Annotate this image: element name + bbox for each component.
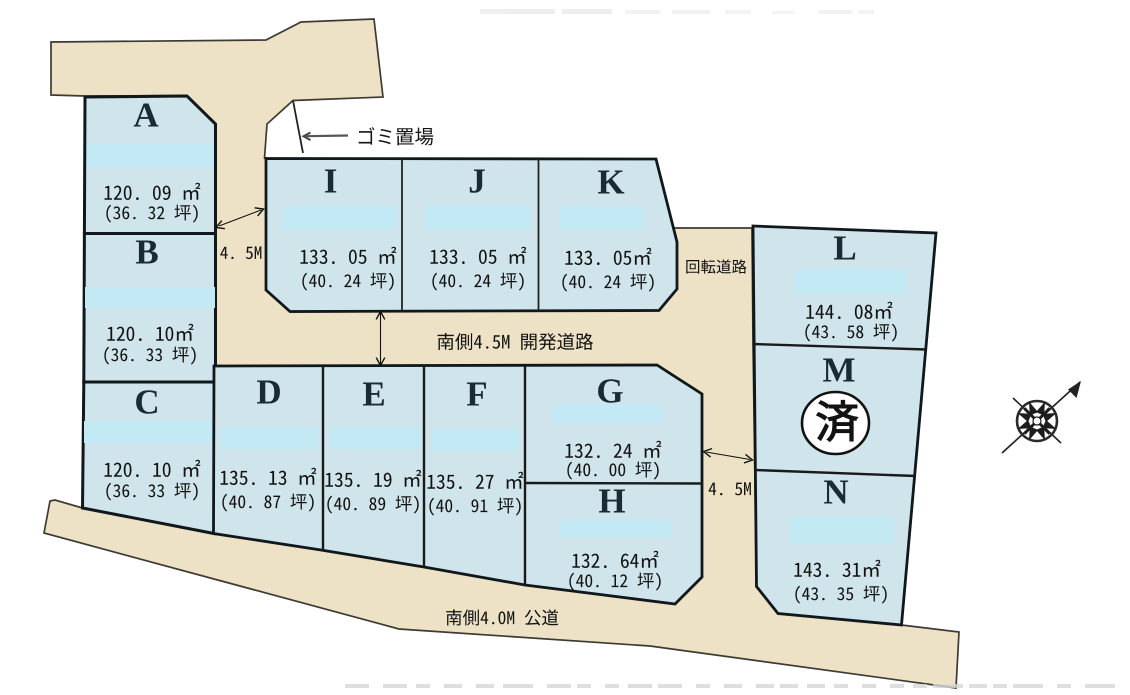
svg-text:G: G (596, 372, 623, 411)
svg-text:F: F (466, 375, 487, 414)
svg-text:E: E (362, 375, 385, 414)
svg-text:C: C (134, 383, 159, 422)
svg-text:K: K (597, 163, 624, 202)
svg-text:M: M (822, 351, 855, 390)
svg-text:L: L (833, 229, 856, 268)
svg-text:B: B (135, 233, 158, 272)
svg-text:N: N (823, 473, 848, 512)
svg-text:J: J (468, 162, 486, 201)
svg-text:I: I (324, 162, 338, 201)
svg-text:A: A (133, 96, 159, 135)
svg-text:H: H (598, 482, 625, 521)
svg-text:D: D (256, 373, 281, 412)
